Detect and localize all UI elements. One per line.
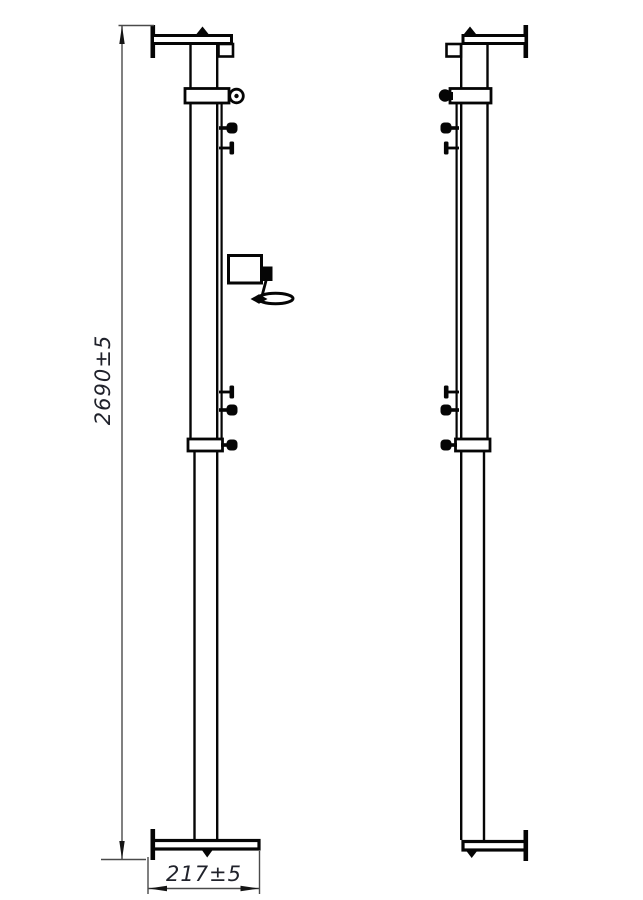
right-base-marker-triangle [466, 851, 478, 859]
left-top-collar [185, 89, 229, 104]
width-dim-arrow-right [241, 886, 260, 891]
width-dimension: 217±5 [148, 851, 260, 894]
height-dim-arrow-top [119, 26, 124, 45]
right-top-collar [450, 89, 491, 104]
drawing-canvas: 2690±5 217±5 [0, 0, 643, 900]
winch-lug [261, 267, 273, 282]
cable-pulley-axle [234, 94, 238, 98]
left-top-flange-plate [153, 36, 232, 44]
right-top-marker-triangle [464, 27, 476, 35]
left-top-marker-triangle [197, 27, 209, 35]
height-dimension: 2690±5 [91, 26, 154, 860]
right-telescopic-collar [456, 439, 491, 451]
width-dim-label: 217±5 [166, 862, 242, 886]
width-dim-arrow-left [149, 886, 168, 891]
height-dim-arrow-bottom [119, 841, 124, 860]
height-dim-label: 2690±5 [91, 335, 115, 425]
winch-box [229, 256, 262, 284]
right-top-flange-lip [447, 44, 462, 57]
left-base-marker-triangle [202, 850, 214, 858]
left-base-flange-bar [151, 829, 156, 860]
left-base-flange-plate [153, 841, 260, 850]
left-telescopic-collar [188, 439, 223, 451]
right-post [439, 25, 528, 861]
cable-eyelet [439, 89, 451, 101]
left-post [151, 25, 294, 860]
left-top-flange-lip [219, 44, 234, 57]
right-top-flange-plate [463, 36, 526, 44]
right-base-flange-plate [463, 842, 526, 851]
right-base-flange-bar [524, 830, 529, 861]
